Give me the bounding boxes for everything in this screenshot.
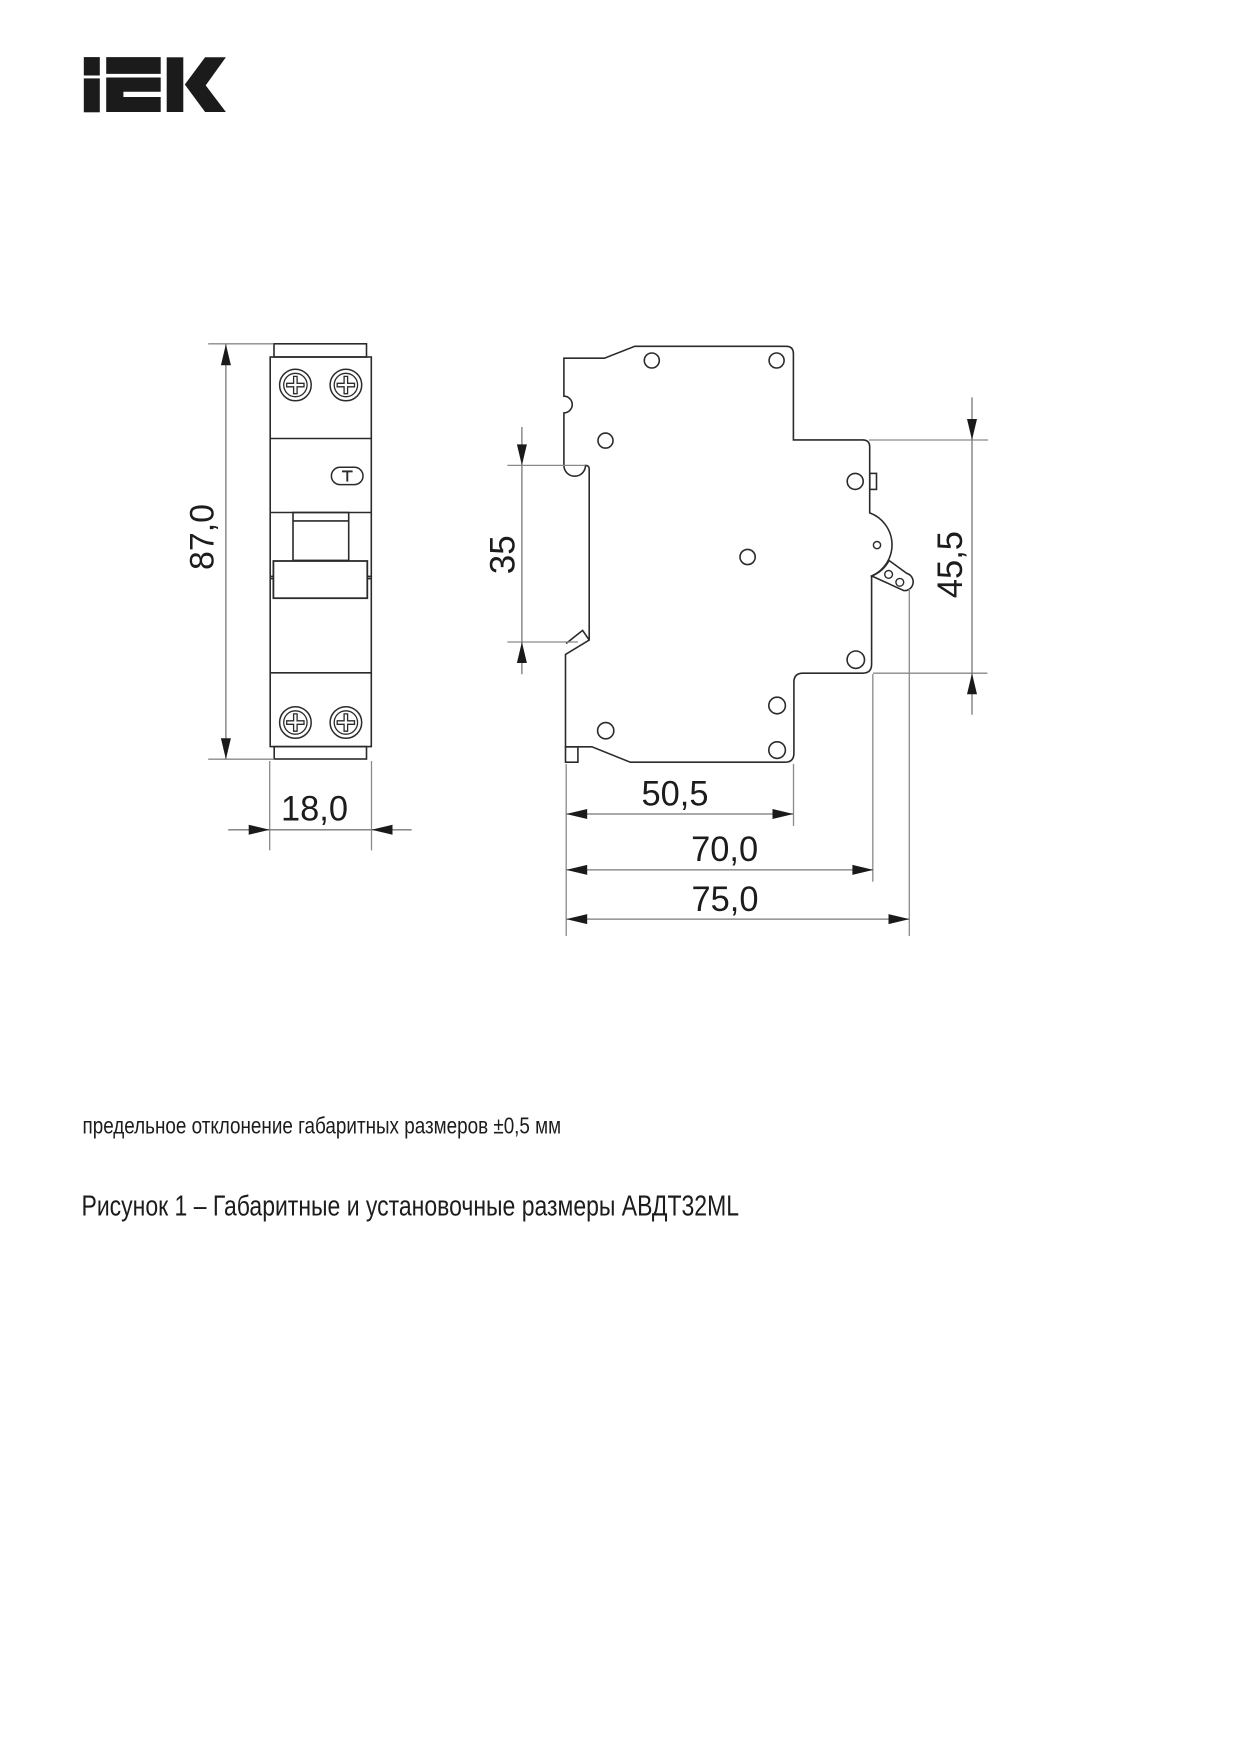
svg-text:18,0: 18,0 — [281, 790, 348, 829]
svg-text:70,0: 70,0 — [691, 830, 758, 869]
svg-text:50,5: 50,5 — [642, 775, 709, 814]
svg-text:87,0: 87,0 — [184, 504, 222, 570]
svg-text:75,0: 75,0 — [692, 880, 759, 919]
svg-text:45,5: 45,5 — [931, 531, 970, 598]
svg-text:Рисунок 1 – Габаритные и устан: Рисунок 1 – Габаритные и установочные ра… — [82, 1191, 740, 1223]
svg-text:предельное отклонение габаритн: предельное отклонение габаритных размеро… — [83, 1113, 562, 1139]
svg-text:35: 35 — [483, 535, 522, 574]
